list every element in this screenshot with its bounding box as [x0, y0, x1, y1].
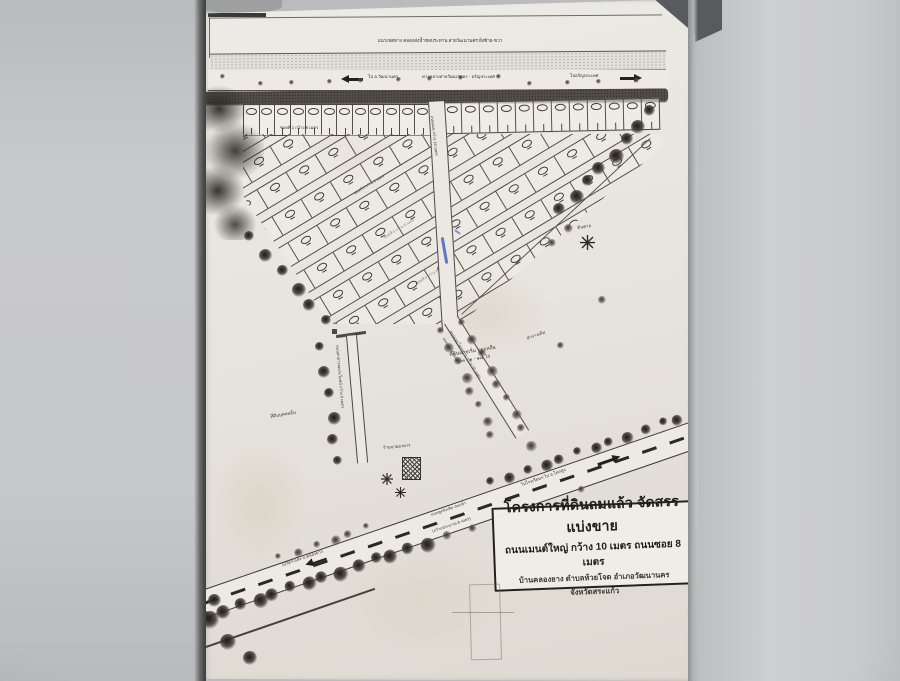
tree-icon [458, 319, 465, 326]
palm-tree-icon [381, 473, 393, 485]
plot-number-mark [402, 108, 413, 115]
plot-number-mark [308, 108, 319, 115]
tree-icon [485, 476, 495, 486]
plot-number-mark [386, 108, 397, 115]
road-end-marker [332, 329, 337, 334]
tree-icon [576, 485, 585, 494]
plot-size-mark [304, 172, 309, 175]
plot-number-mark [573, 103, 584, 110]
plot-number-mark [628, 253, 641, 265]
plot-number-mark [613, 226, 626, 238]
tree-icon [458, 75, 463, 80]
tree-icon [358, 78, 363, 83]
tree-icon [570, 190, 584, 204]
tree-icon [333, 456, 342, 465]
plot-number-mark [537, 104, 548, 111]
plot-size-mark [394, 190, 399, 193]
tree-icon [396, 77, 401, 82]
plot-number-mark [270, 252, 283, 264]
plot-number-mark [541, 306, 554, 318]
tree-icon [553, 203, 565, 215]
plot-number-mark [586, 315, 599, 324]
photo-background-smudge [198, 0, 282, 13]
plot-size-mark [424, 172, 429, 175]
plot-number-mark [511, 323, 524, 324]
tree-icon [465, 387, 474, 396]
tree-icon [468, 523, 478, 533]
plot-number-mark [324, 108, 335, 115]
tree-icon [639, 423, 652, 436]
plot-size-mark [336, 225, 341, 228]
plot-size-mark [457, 296, 462, 299]
plot-number-mark [642, 209, 655, 221]
tree-icon [548, 239, 556, 247]
tree-icon [328, 412, 341, 425]
tree-icon [658, 416, 668, 426]
tree-icon [330, 534, 343, 547]
plot-size-mark [381, 234, 386, 237]
plot-cell [604, 289, 644, 324]
plot-number-mark [655, 165, 665, 177]
tree-icon [487, 366, 498, 377]
tree-icon [244, 231, 254, 241]
tree-icon [467, 335, 477, 345]
tree-icon [400, 541, 415, 556]
plot-size-mark [503, 305, 508, 308]
tree-icon [527, 81, 532, 86]
tree-icon [220, 634, 236, 650]
plot-size-mark [410, 217, 415, 220]
plot-cell [322, 105, 338, 135]
plot-size-mark [412, 287, 417, 290]
tree-icon [517, 424, 525, 432]
plot-size-mark [548, 314, 553, 317]
plot-number-mark [277, 108, 288, 115]
plot-size-mark [498, 164, 503, 167]
tree-icon [259, 249, 272, 262]
tree-icon [620, 430, 635, 445]
plot-size-mark [469, 181, 474, 184]
plot-size-mark [606, 279, 611, 282]
plot-number-mark [615, 297, 628, 309]
plot-number-mark [501, 104, 512, 111]
plot-size-mark [604, 209, 609, 212]
other-land-label: ที่ดินบุคคลอื่น [270, 410, 296, 419]
paper-left-edge-shadow [194, 0, 206, 681]
plot-size-mark [275, 190, 280, 193]
plot-size-mark [322, 269, 327, 272]
plot-size-mark [620, 235, 625, 238]
tree-icon [644, 105, 655, 116]
tree-icon [444, 343, 454, 353]
plot-cell [384, 105, 400, 135]
public-side-road [346, 335, 368, 463]
palm-tree-icon [580, 235, 595, 250]
plot-size-mark [365, 208, 370, 211]
tree-icon [572, 446, 582, 456]
plot-cell [530, 297, 570, 324]
plot-size-mark [622, 306, 627, 309]
tree-icon [564, 224, 573, 233]
plot-cell [645, 156, 665, 192]
plot-cell [480, 102, 499, 132]
plot-number-mark [609, 102, 620, 109]
plot-size-mark [383, 305, 388, 308]
tree-icon [362, 522, 370, 530]
plot-size-mark [635, 262, 640, 265]
plot-number-mark [626, 182, 639, 194]
plot-number-mark [519, 104, 530, 111]
plot-cell [501, 315, 541, 324]
plot-row-right [443, 98, 661, 135]
tree-icon [522, 463, 533, 474]
tree-icon [427, 76, 432, 81]
plot-size-mark [577, 297, 582, 300]
tree-icon [503, 470, 517, 484]
plot-size-mark [320, 199, 325, 202]
tree-icon [418, 535, 437, 554]
plot-cell [663, 254, 665, 290]
tree-icon [381, 548, 399, 566]
tree-icon [553, 453, 566, 466]
plot-number-mark [644, 280, 657, 292]
tree-icon [454, 357, 462, 365]
tree-icon [292, 283, 306, 297]
tree-icon [283, 580, 297, 594]
plot-cell [534, 101, 553, 131]
plot-number-mark [465, 105, 476, 112]
tree-icon [565, 80, 570, 85]
plot-number-mark [627, 102, 638, 109]
left-road-label: ถนนสาธารณประโยชน์ กว้าง 6 เมตร [334, 345, 344, 408]
plot-size-mark [291, 216, 296, 219]
canal-label: แนวเขตทาง คลองส่งน้ำชลประทาน สายวัฒนานคร… [320, 38, 560, 43]
tree-icon [327, 79, 332, 84]
tree-icon [277, 265, 288, 276]
tree-icon [274, 552, 282, 560]
shop-label: ร้านขายอาหาร [383, 444, 411, 451]
tree-icon [590, 441, 604, 455]
plot-number-mark [483, 105, 494, 112]
plot-cell [588, 262, 628, 298]
tree-icon [557, 342, 564, 349]
plan-sheet: แนวเขตทาง คลองส่งน้ำชลประทาน สายวัฒนานคร… [200, 0, 695, 681]
plot-number-mark [392, 323, 405, 324]
plot-size-mark [649, 218, 654, 221]
tree-icon [220, 74, 225, 79]
plot-number-mark [525, 279, 538, 291]
plot-number-mark [570, 288, 583, 300]
frame-top-line [210, 14, 662, 18]
plot-size-mark [333, 154, 338, 157]
plot-cell [615, 174, 655, 210]
plot-size-mark [500, 235, 505, 238]
frame-left-line [209, 16, 210, 58]
frame-corner-bar [208, 13, 266, 17]
tree-icon [596, 79, 601, 84]
palm-tree-label: ต้นตาล [577, 223, 591, 230]
tree-icon [208, 594, 221, 607]
plot-cell [559, 280, 599, 316]
plot-number-mark [554, 261, 567, 273]
plot-cell [647, 227, 665, 263]
plot-cell [400, 105, 416, 135]
plot-row-left [243, 104, 431, 136]
plot-number-mark [339, 108, 350, 115]
pencil-line [452, 612, 514, 613]
tree-icon [602, 436, 613, 447]
plot-number-mark [591, 102, 602, 109]
plot-cell [543, 253, 583, 289]
tree-icon [634, 78, 639, 83]
tree-icon [289, 80, 294, 85]
plot-cell [586, 191, 626, 227]
plot-cell [660, 183, 665, 219]
tree-icon [483, 417, 493, 427]
plot-size-mark [651, 288, 656, 291]
tree-icon [233, 597, 248, 612]
plot-size-mark [307, 243, 312, 246]
photo-background-right [698, 0, 900, 681]
tree-icon [437, 327, 444, 334]
plot-size-mark [646, 147, 651, 150]
plot-number-mark [355, 108, 366, 115]
tree-icon [582, 175, 593, 186]
tree-icon [512, 410, 522, 420]
plot-size-mark [633, 191, 638, 194]
plot-cell [588, 100, 607, 130]
tree-icon [351, 558, 368, 575]
plot-number-mark [597, 200, 610, 212]
highway-to-right-label: ไปอรัญประเทศ [570, 73, 598, 78]
plot-number-mark [599, 271, 612, 283]
plot-cell [337, 105, 353, 135]
plot-size-mark [309, 314, 314, 317]
tree-icon [318, 366, 330, 378]
plot-number-mark [447, 105, 458, 112]
paper-right-edge-shadow [688, 0, 698, 681]
plot-cell [514, 271, 554, 307]
plot-number-mark [370, 108, 381, 115]
plot-size-mark [473, 323, 478, 324]
tree-icon [475, 401, 482, 408]
project-title: โครงการที่ดินถมแล้ว จัดสรรแบ่งขาย [493, 490, 691, 541]
plot-cell [552, 101, 571, 131]
plot-size-mark [662, 173, 665, 176]
plot-size-mark [482, 137, 487, 140]
tree-icon [486, 431, 494, 439]
tree-icon [670, 413, 684, 427]
plot-cell [606, 99, 625, 129]
plot-size-mark [590, 253, 595, 256]
tree-icon [503, 394, 510, 401]
plot-cell [633, 271, 665, 307]
main-road-top-label: ถนนเมน กว้าง 10 เมตร [429, 116, 438, 156]
plot-cell [570, 100, 589, 130]
plot-cell [498, 102, 517, 132]
plot-number-mark [555, 103, 566, 110]
highway-to-left-label: ไป อ.วัฒนานคร [368, 74, 398, 79]
plot-cell [618, 245, 658, 281]
tree-icon [526, 441, 537, 452]
tree-icon [312, 540, 321, 549]
plot-size-mark [453, 155, 458, 158]
tree-cluster-icon [200, 86, 264, 240]
plot-cell [485, 288, 525, 324]
tree-icon [462, 373, 473, 384]
plot-cell [353, 105, 369, 135]
tree-icon [592, 162, 605, 175]
plot-size-mark [529, 217, 534, 220]
plot-size-mark [487, 279, 492, 282]
shop-building-icon [402, 457, 421, 480]
tree-icon [327, 434, 338, 445]
tree-icon [321, 315, 331, 325]
arrow-right-icon [620, 77, 635, 80]
tree-icon [478, 349, 486, 357]
plot-cell [602, 218, 642, 254]
tree-icon [258, 81, 263, 86]
tree-icon [370, 551, 384, 565]
plot-size-mark [471, 252, 476, 255]
plot-size-mark [527, 146, 532, 149]
ditch-label: ลำรางเดิม [526, 329, 546, 340]
tree-icon [441, 530, 452, 541]
plot-cell [369, 105, 385, 135]
title-box: โครงการที่ดินถมแล้ว จัดสรรแบ่งขาย ถนนเมน… [491, 500, 694, 592]
plot-size-mark [532, 288, 537, 291]
plot-number-mark [466, 314, 479, 324]
plot-number-mark [658, 235, 665, 247]
plot-number-mark [417, 108, 428, 115]
plot-cell [462, 103, 481, 133]
palm-tree-icon [395, 487, 406, 498]
plot-cell [516, 101, 535, 131]
plot-size-mark [428, 314, 433, 317]
tree-icon [496, 74, 501, 79]
tree-icon [315, 342, 324, 351]
tree-icon [331, 564, 350, 583]
plot-number-mark [496, 297, 509, 309]
soi1-label: ซอยที่ 1 กว้าง 8 เมตร [280, 126, 318, 131]
pencil-rectangle [469, 584, 502, 661]
plot-cell [631, 200, 665, 236]
tree-icon [324, 388, 334, 398]
tree-icon [598, 296, 606, 304]
plot-size-mark [277, 260, 282, 263]
tree-icon [609, 149, 624, 164]
plot-size-mark [349, 181, 354, 184]
tree-icon [492, 380, 501, 389]
plot-cell [575, 306, 615, 324]
plot-size-mark [378, 163, 383, 166]
plot-size-mark [352, 252, 357, 255]
plot-size-mark [561, 270, 566, 273]
photographed-plan: แนวเขตทาง คลองส่งน้ำชลประทาน สายวัฒนานคร… [0, 0, 900, 681]
tree-icon [631, 120, 645, 134]
tree-icon [303, 299, 315, 311]
tree-icon [243, 651, 257, 665]
plot-size-mark [408, 146, 413, 149]
tree-icon [343, 529, 353, 539]
plot-number-mark [293, 108, 304, 115]
road-spec-line: ถนนเมนต์ใหญ่ กว้าง 10 เมตร ถนนซอย 8 เมตร [495, 536, 692, 574]
plot-size-mark [363, 137, 368, 140]
